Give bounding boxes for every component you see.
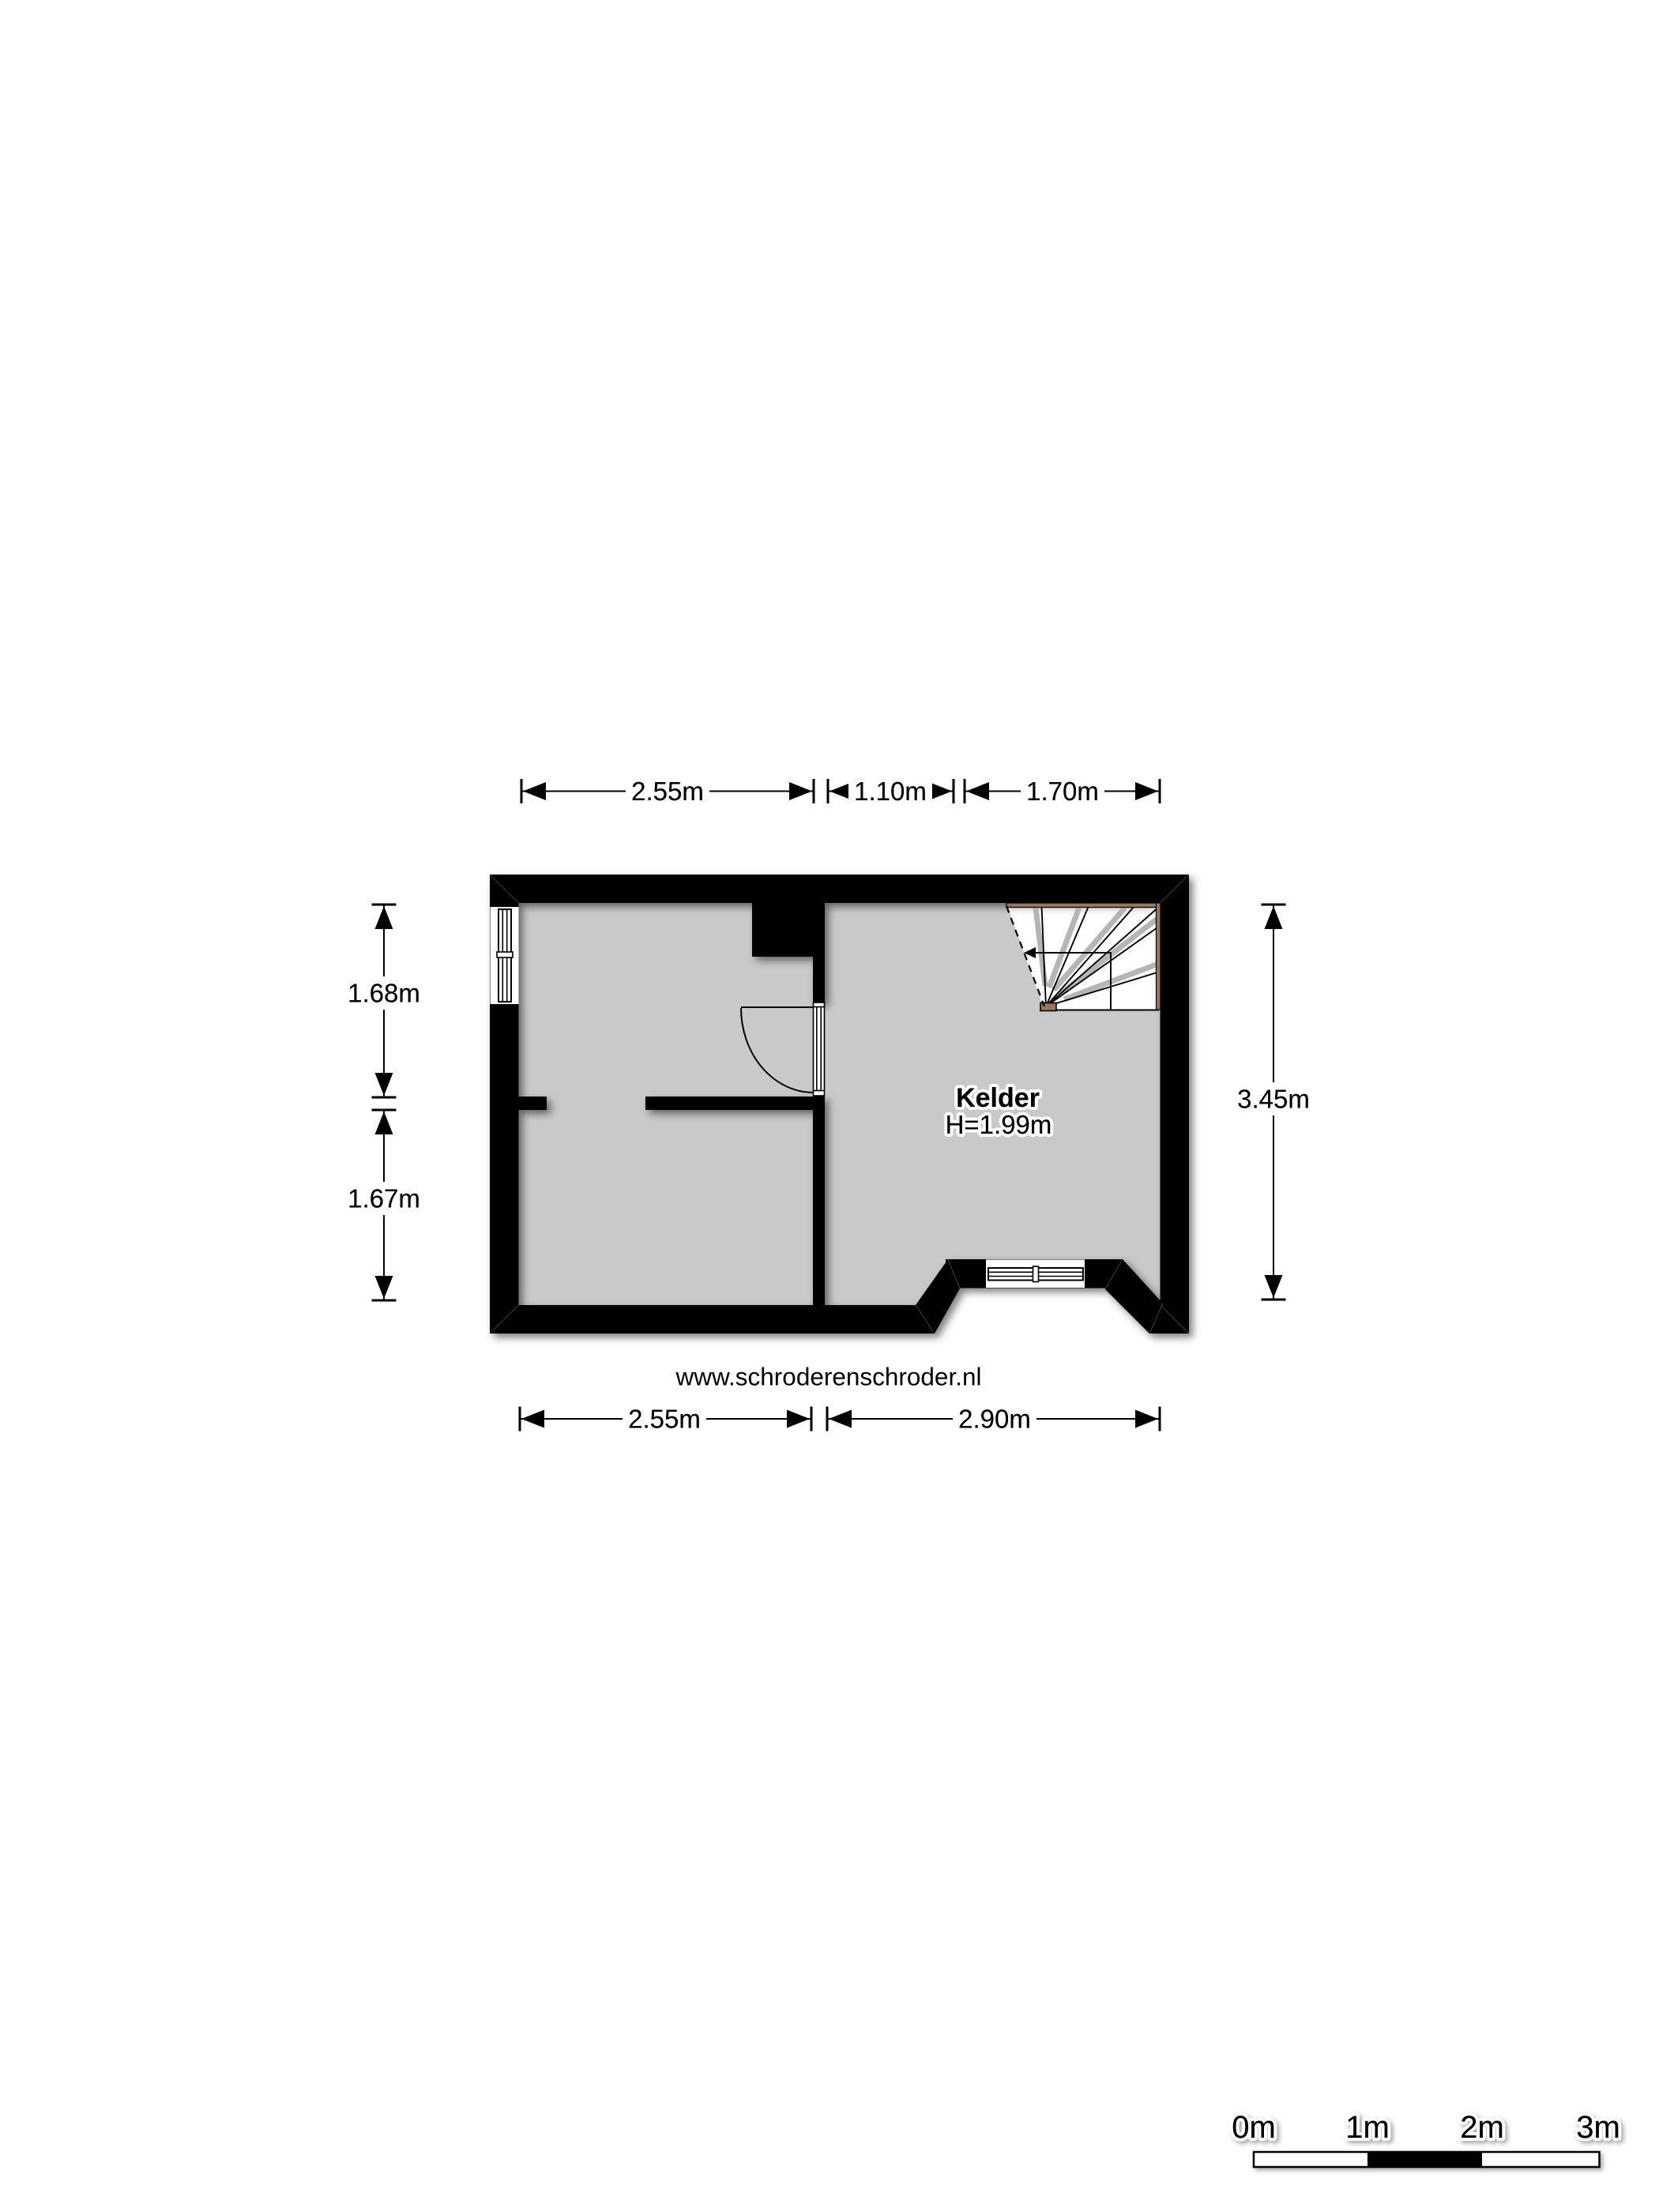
- svg-text:H=1.99m: H=1.99m: [946, 1110, 1052, 1139]
- svg-text:2.55m: 2.55m: [631, 777, 704, 806]
- svg-text:1.67m: 1.67m: [348, 1184, 420, 1213]
- svg-text:1.10m: 1.10m: [854, 777, 927, 806]
- svg-text:www.schroderenschroder.nl: www.schroderenschroder.nl: [675, 1363, 982, 1391]
- svg-text:3m: 3m: [1576, 2110, 1620, 2145]
- svg-text:2.55m: 2.55m: [628, 1405, 701, 1434]
- svg-text:3.45m: 3.45m: [1237, 1085, 1310, 1114]
- svg-text:0m: 0m: [1232, 2110, 1276, 2145]
- svg-text:2m: 2m: [1460, 2110, 1504, 2145]
- svg-text:2.90m: 2.90m: [958, 1405, 1031, 1434]
- svg-text:1.70m: 1.70m: [1026, 777, 1099, 806]
- svg-text:1.68m: 1.68m: [348, 979, 420, 1008]
- svg-text:1m: 1m: [1345, 2110, 1390, 2145]
- svg-text:Kelder: Kelder: [956, 1083, 1040, 1113]
